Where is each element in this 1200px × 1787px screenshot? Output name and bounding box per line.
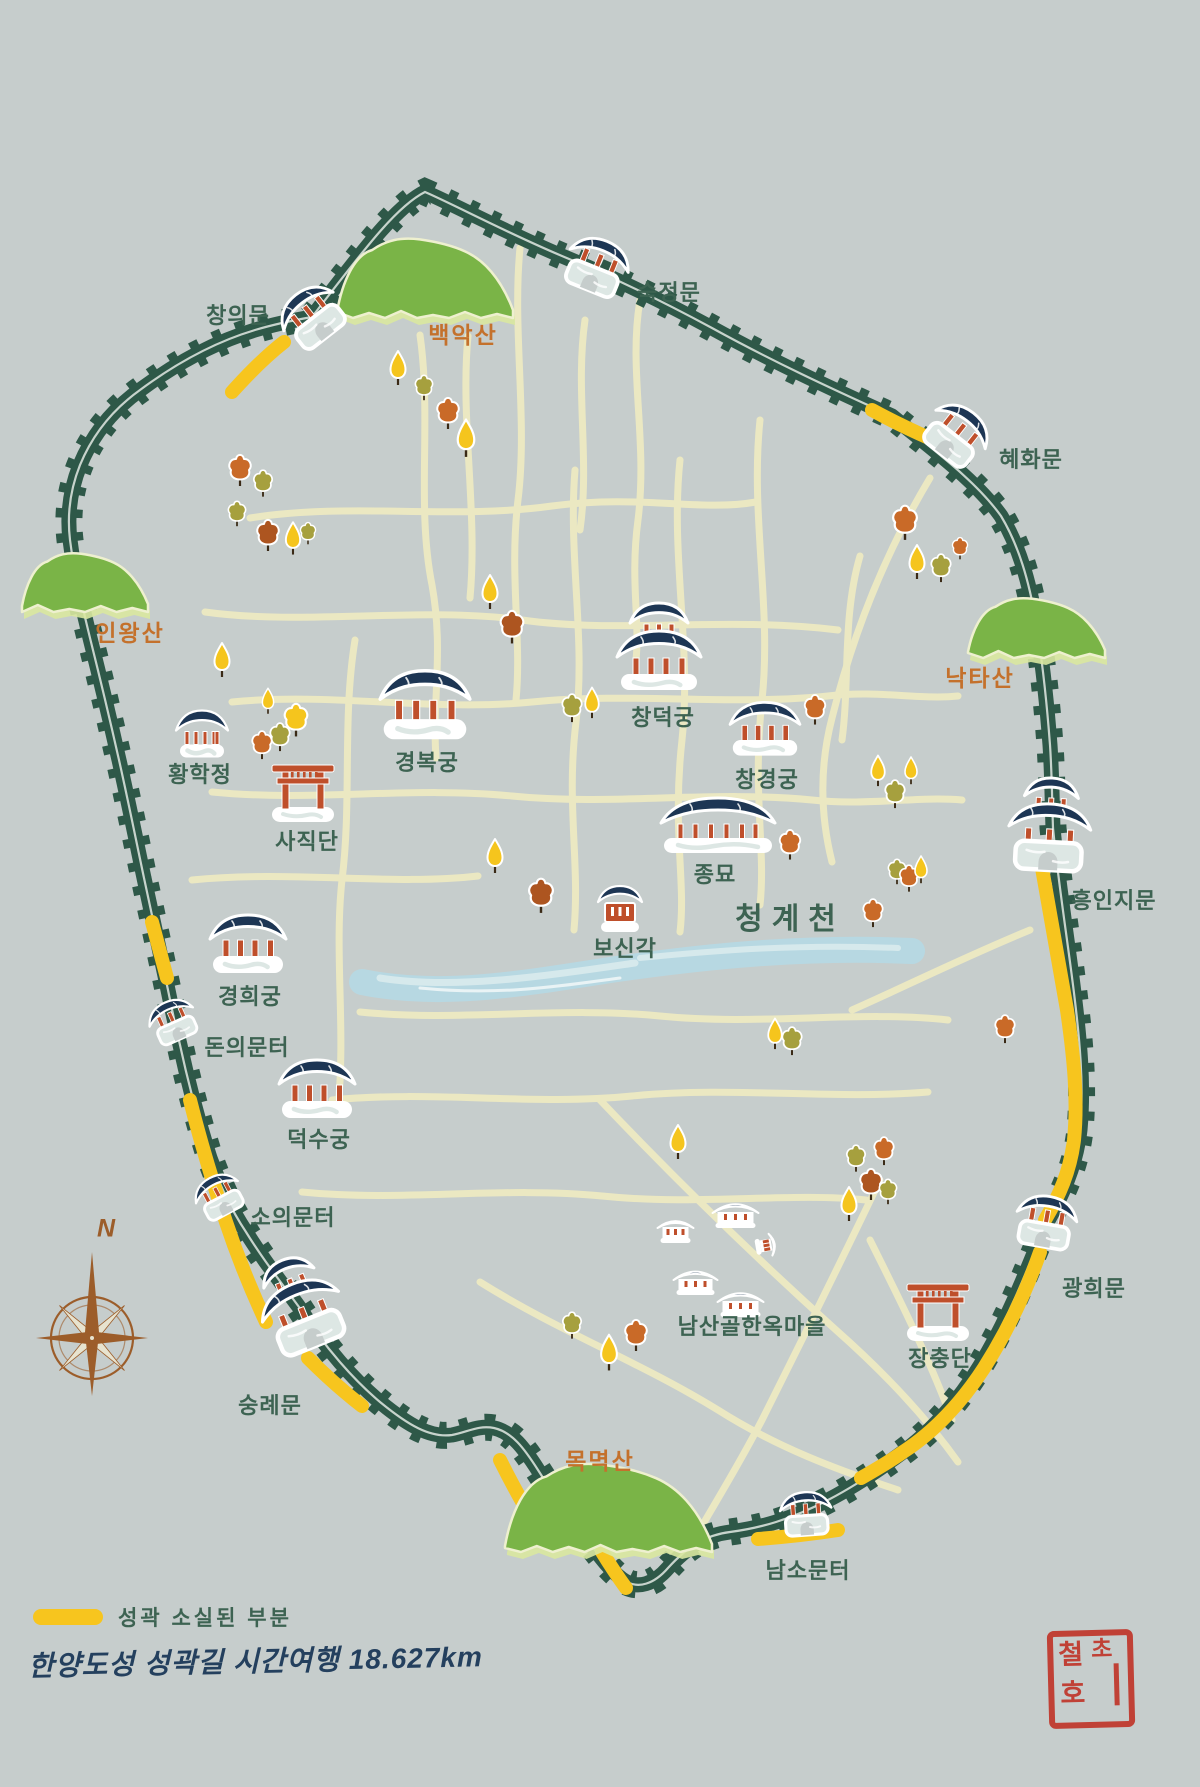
- naktasan-label: 낙타산: [945, 659, 1014, 693]
- sungnyemun-icon: [237, 1238, 361, 1367]
- sungnyemun-label: 숭례문: [238, 1388, 302, 1420]
- namsangol-hanok-village-label: 남산골한옥마을: [678, 1309, 827, 1341]
- cheonggyecheon-label: 청계천: [735, 894, 845, 938]
- deoksugung-icon: [275, 1056, 359, 1122]
- legend-lost-swatch: [33, 1609, 103, 1625]
- gyeonghuigung-icon: [206, 911, 290, 977]
- gwanghuimun-label: 광희문: [1062, 1271, 1126, 1303]
- jangchungdan-icon: [902, 1276, 974, 1346]
- donuimunteo-label: 돈의문터: [205, 1030, 290, 1062]
- donuimunteo-icon: [137, 988, 209, 1055]
- namsangol-hanok-village-icon: [641, 1182, 796, 1322]
- namsomunteo-icon: [773, 1486, 839, 1542]
- bosingak-label: 보신각: [593, 931, 657, 963]
- jongmyo-icon: [656, 794, 780, 856]
- changgyeonggung-icon: [726, 699, 803, 760]
- sukjeongmun-icon: [550, 223, 644, 310]
- legend: 성곽 소실된 부분: [33, 1602, 292, 1632]
- hyehwamun-label: 혜화문: [999, 442, 1063, 474]
- hwanghakjeong-icon: [172, 707, 232, 762]
- hwanghakjeong-label: 황학정: [168, 757, 232, 789]
- legend-lost-label: 성곽 소실된 부분: [118, 1602, 292, 1632]
- changdeokgung-icon: [613, 598, 705, 694]
- changgyeonggung-label: 창경궁: [735, 762, 799, 794]
- deoksugung-label: 덕수궁: [287, 1122, 351, 1154]
- gyeongbokgung-label: 경복궁: [395, 745, 459, 777]
- gwanghuimun-icon: [1004, 1186, 1087, 1259]
- souimunteo-icon: [182, 1162, 255, 1231]
- namsomunteo-label: 남소문터: [766, 1553, 851, 1585]
- seal-char-2: 초: [1091, 1637, 1113, 1661]
- souimunteo-label: 소의문터: [251, 1200, 336, 1232]
- landmarks-layer: 창의문숙정문혜화문흥인지문광희문남소문터숭례문소의문터돈의문터경복궁창덕궁창경궁…: [0, 0, 1200, 1787]
- seal-char-1: 철: [1058, 1641, 1084, 1669]
- jongmyo-label: 종묘: [694, 857, 736, 889]
- gyeongbokgung-icon: [375, 666, 474, 744]
- hyehwamun-icon: [908, 386, 1006, 482]
- heunginjimun-label: 흥인지문: [1072, 883, 1157, 915]
- jangchungdan-label: 장충단: [908, 1341, 972, 1373]
- hanyangdoseong-map: 창의문숙정문혜화문흥인지문광희문남소문터숭례문소의문터돈의문터경복궁창덕궁창경궁…: [0, 0, 1200, 1787]
- changuimun-icon: [263, 268, 361, 364]
- bugaksan-label: 백악산: [428, 316, 497, 350]
- heunginjimun-icon: [1001, 771, 1098, 878]
- changdeokgung-label: 창덕궁: [631, 700, 695, 732]
- changuimun-label: 창의문: [206, 298, 270, 330]
- seal-char-3: 호: [1060, 1680, 1086, 1708]
- seal-mark: [1114, 1663, 1120, 1705]
- bosingak-icon: [594, 883, 646, 935]
- artist-seal: 철 초 호: [1047, 1629, 1136, 1729]
- inwangsan-label: 인왕산: [95, 614, 164, 648]
- gyeonghuigung-label: 경희궁: [218, 979, 282, 1011]
- sukjeongmun-label: 숙정문: [637, 275, 701, 307]
- sajikdan-icon: [267, 757, 339, 827]
- mongmyeoksan-label: 목멱산: [565, 1442, 634, 1476]
- compass-north-label: N: [97, 1215, 115, 1244]
- sajikdan-label: 사직단: [275, 824, 339, 856]
